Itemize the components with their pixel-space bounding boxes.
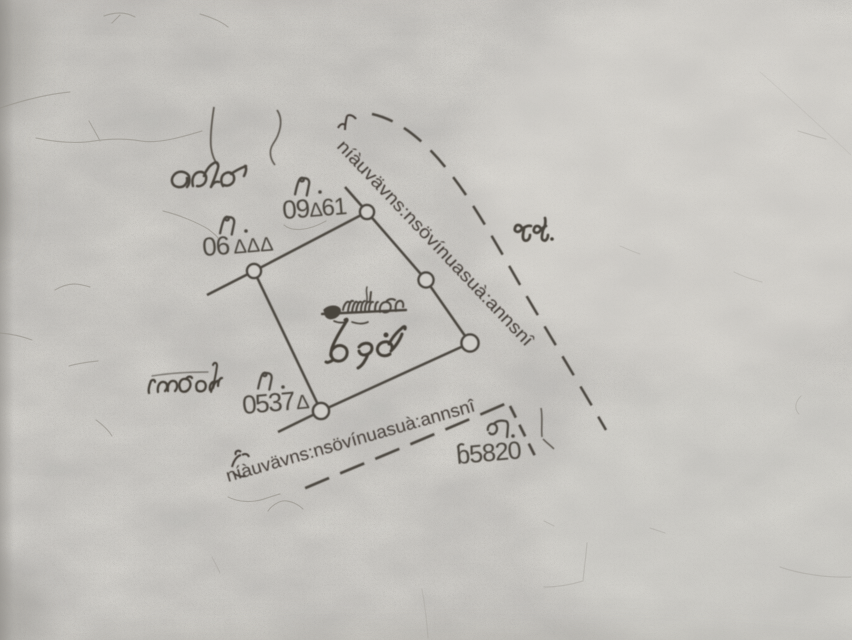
svg-text:b5820: b5820 xyxy=(455,436,522,470)
